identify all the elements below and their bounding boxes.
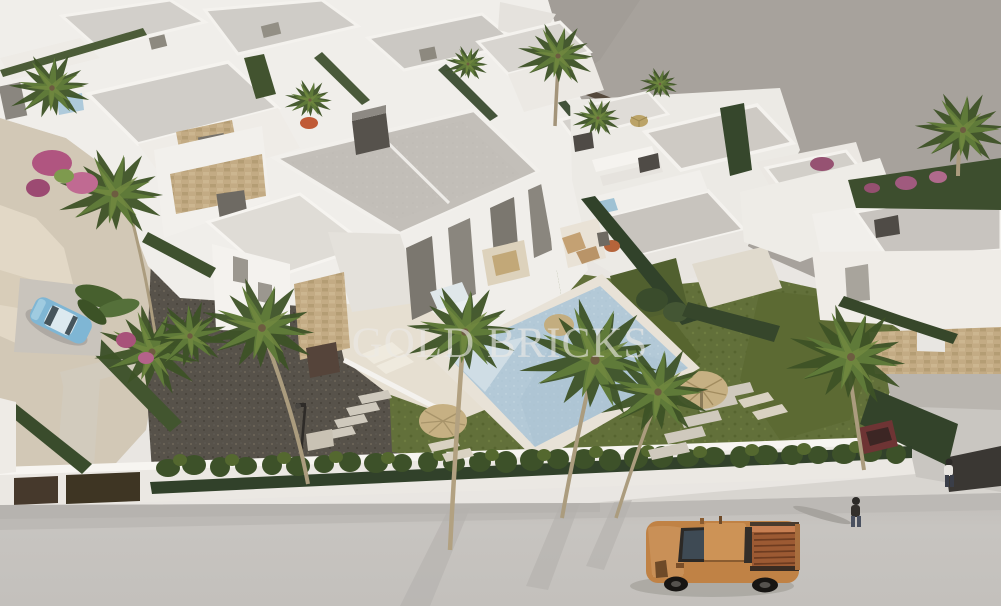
svg-text:GOLD BRICKS: GOLD BRICKS	[352, 320, 649, 367]
